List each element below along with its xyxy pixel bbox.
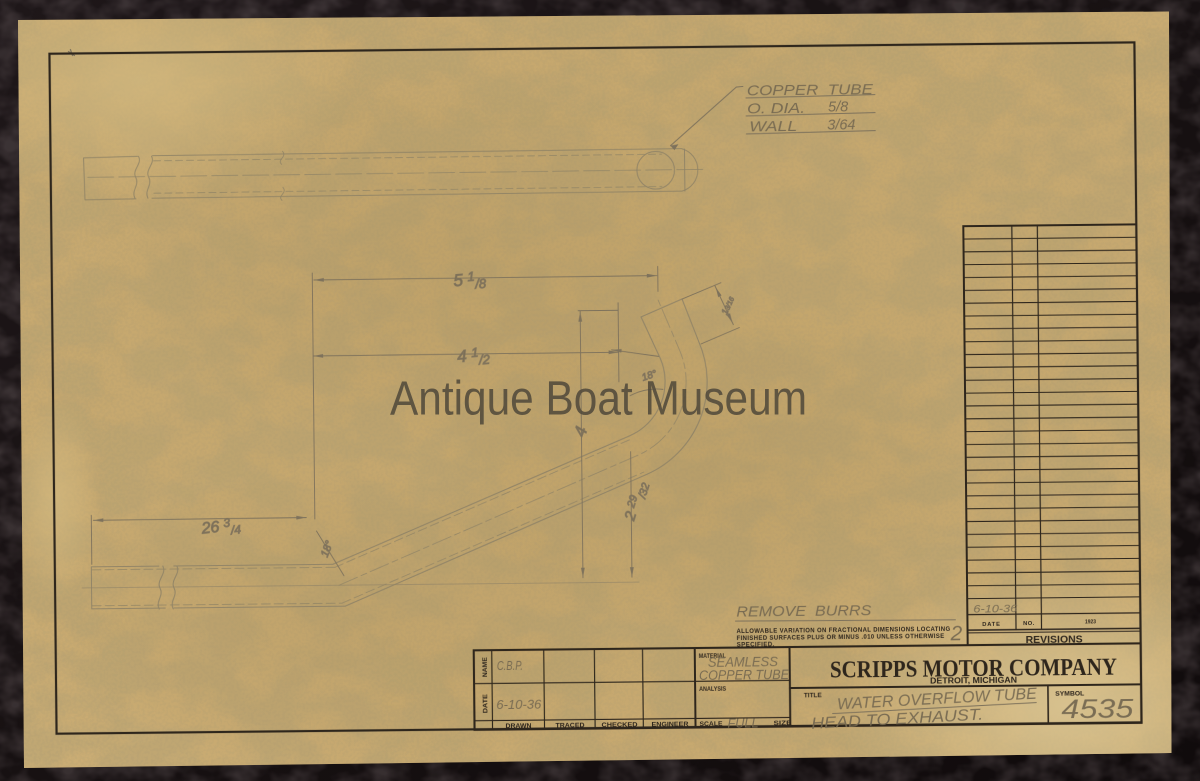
svg-text:REMOVE BURRS: REMOVE BURRS [736,602,871,620]
svg-text:SCALE: SCALE [699,721,723,728]
svg-text:NO.: NO. [1023,621,1035,627]
svg-text:6-10-36: 6-10-36 [973,603,1018,615]
svg-text:ENGINEER: ENGINEER [651,721,688,728]
svg-text:Antique Boat Museum: Antique Boat Museum [390,373,807,426]
svg-text:CHECKED: CHECKED [601,722,637,729]
svg-text:2: 2 [949,622,962,645]
svg-text:C.B.P.: C.B.P. [497,658,523,673]
svg-text:DATE: DATE [982,622,1001,628]
svg-text:1923: 1923 [1085,619,1096,625]
svg-text:COPPER TUBE: COPPER TUBE [699,667,790,683]
svg-text:REVISIONS: REVISIONS [1026,633,1083,646]
svg-text:ANALYSIS: ANALYSIS [699,686,726,693]
svg-text:COPPER TUBE: COPPER TUBE [747,82,874,99]
svg-text:FULL: FULL [727,716,758,730]
svg-text:6-10-36: 6-10-36 [496,697,542,712]
svg-text:SIZE: SIZE [773,720,792,727]
svg-text:DETROIT, MICHIGAN: DETROIT, MICHIGAN [930,676,1017,686]
svg-text:DATE: DATE [482,694,489,714]
svg-text:DRAWN: DRAWN [505,723,531,730]
svg-text:TITLE: TITLE [804,692,823,699]
svg-text:TRACED: TRACED [555,722,584,729]
svg-text:NAME: NAME [482,657,489,678]
svg-text:4535: 4535 [1061,693,1134,724]
